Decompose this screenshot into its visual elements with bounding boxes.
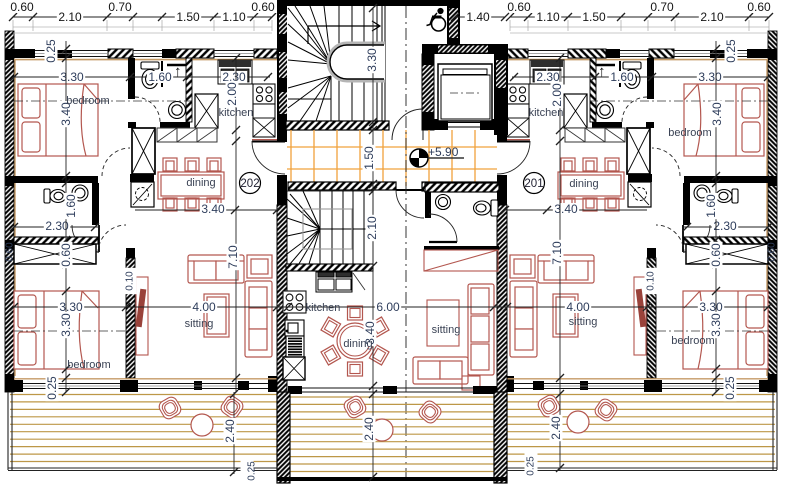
svg-text:bedroom: bedroom — [668, 127, 711, 139]
svg-text:2.30: 2.30 — [713, 219, 737, 233]
svg-text:7.10: 7.10 — [550, 241, 564, 265]
svg-text:↑: ↑ — [598, 63, 606, 80]
svg-text:1.50: 1.50 — [362, 146, 376, 170]
svg-text:0.60: 0.60 — [5, 242, 16, 262]
svg-text:0.25: 0.25 — [724, 39, 738, 63]
svg-text:3.30: 3.30 — [60, 70, 84, 84]
svg-text:bedroom: bedroom — [671, 335, 714, 347]
svg-text:202: 202 — [240, 178, 259, 190]
svg-text:+5.90: +5.90 — [428, 145, 459, 159]
svg-text:3.30: 3.30 — [698, 70, 722, 84]
svg-text:3.40: 3.40 — [554, 202, 578, 216]
svg-text:2.10: 2.10 — [700, 10, 724, 24]
svg-text:0.25: 0.25 — [45, 376, 59, 400]
svg-text:kitchen: kitchen — [306, 302, 341, 314]
svg-text:0.60: 0.60 — [747, 0, 771, 14]
svg-text:4.00: 4.00 — [192, 300, 216, 314]
svg-text:0.25: 0.25 — [723, 376, 737, 400]
svg-text:1.10: 1.10 — [222, 10, 246, 24]
svg-text:2.40: 2.40 — [549, 416, 563, 440]
svg-text:2.10: 2.10 — [58, 10, 82, 24]
svg-text:0.60: 0.60 — [59, 243, 73, 267]
svg-text:0.10: 0.10 — [125, 271, 136, 291]
svg-text:0.60: 0.60 — [709, 243, 723, 267]
svg-text:3.30: 3.30 — [709, 313, 723, 337]
svg-text:0.70: 0.70 — [650, 0, 674, 14]
svg-text:sitting: sitting — [185, 318, 214, 330]
svg-text:sitting: sitting — [569, 316, 598, 328]
svg-text:0.70: 0.70 — [108, 0, 132, 14]
svg-text:2.00: 2.00 — [225, 82, 239, 106]
svg-text:3.30: 3.30 — [59, 313, 73, 337]
svg-text:7.10: 7.10 — [226, 245, 240, 269]
svg-text:bedroom: bedroom — [67, 359, 110, 371]
svg-text:1.60: 1.60 — [64, 194, 78, 218]
svg-text:kitchen: kitchen — [529, 107, 564, 119]
svg-text:sitting: sitting — [432, 324, 461, 336]
svg-text:0.60: 0.60 — [767, 242, 778, 262]
svg-text:0.25: 0.25 — [526, 456, 537, 476]
svg-text:4.00: 4.00 — [566, 300, 590, 314]
svg-text:2.40: 2.40 — [223, 419, 237, 443]
svg-text:1.60: 1.60 — [148, 70, 172, 84]
svg-text:1.50: 1.50 — [582, 10, 606, 24]
svg-text:kitchen: kitchen — [219, 107, 254, 119]
svg-text:bedroom: bedroom — [66, 95, 109, 107]
svg-text:1.60: 1.60 — [704, 194, 718, 218]
svg-text:dining: dining — [186, 177, 215, 189]
svg-text:3.30: 3.30 — [365, 48, 379, 72]
svg-text:2.00: 2.00 — [550, 83, 564, 107]
svg-text:1.60: 1.60 — [610, 70, 634, 84]
svg-text:3.40: 3.40 — [710, 102, 724, 126]
svg-text:0.60: 0.60 — [10, 0, 34, 14]
svg-text:2.40: 2.40 — [362, 417, 376, 441]
svg-text:0.25: 0.25 — [247, 461, 258, 481]
svg-text:1.10: 1.10 — [536, 10, 560, 24]
svg-text:0.60: 0.60 — [251, 0, 275, 14]
svg-text:↑: ↑ — [174, 63, 182, 80]
svg-text:3.40: 3.40 — [201, 202, 225, 216]
svg-text:1.40: 1.40 — [466, 10, 490, 24]
svg-text:2.10: 2.10 — [365, 216, 379, 240]
svg-text:dining: dining — [343, 338, 372, 350]
svg-text:0.60: 0.60 — [507, 0, 531, 14]
svg-text:1.50: 1.50 — [176, 10, 200, 24]
svg-text:6.00: 6.00 — [376, 300, 400, 314]
svg-text:dining: dining — [569, 178, 598, 190]
svg-text:0.25: 0.25 — [44, 39, 58, 63]
svg-text:2.30: 2.30 — [45, 219, 69, 233]
svg-text:0.10: 0.10 — [646, 271, 657, 291]
svg-text:201: 201 — [524, 178, 543, 190]
